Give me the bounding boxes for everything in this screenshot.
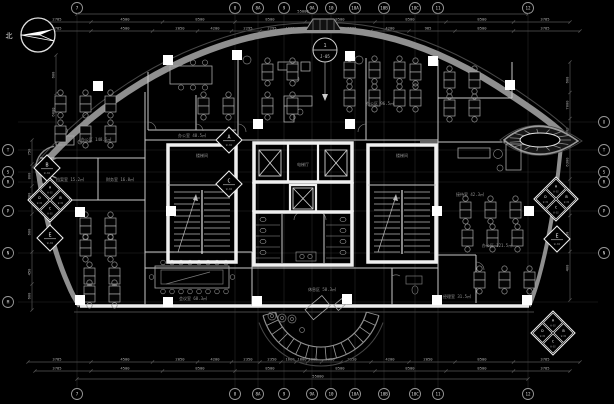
column-marker [93, 81, 103, 91]
dim-value: 450 [26, 268, 31, 276]
room-label: 电梯厅 [297, 161, 309, 167]
ring-spoke [360, 327, 371, 334]
marker-ref: W-02 [553, 191, 559, 194]
dim-value: 750 [26, 148, 31, 156]
dim-value: 8500 [195, 17, 205, 22]
dim-value: 985 [425, 26, 432, 31]
sink-counter [296, 252, 316, 261]
sink [300, 254, 304, 258]
room-label: 经理室 31.5㎡ [443, 293, 471, 299]
chair [83, 90, 88, 95]
chair [161, 260, 166, 265]
desk [223, 98, 234, 106]
stair-direction-arrow [378, 196, 396, 252]
desk [80, 226, 91, 234]
dim-value: 8500 [477, 357, 487, 362]
chair [179, 289, 184, 294]
chair [190, 85, 195, 90]
marker-ref: W-02 [554, 242, 561, 246]
chair [488, 196, 493, 201]
desk [460, 202, 471, 210]
chair [108, 120, 113, 125]
workstation-bank [410, 84, 421, 112]
north-arrow-icon: 北 [6, 18, 56, 52]
elevation-marker-single: EW-02 [37, 225, 63, 251]
column-marker [432, 206, 442, 216]
toilet-fixture [340, 250, 346, 254]
dim-value: 2050 [423, 357, 433, 362]
desk [444, 72, 455, 80]
grid-bubble: M [3, 297, 14, 308]
desk [469, 80, 480, 88]
marker-ref: W-02 [553, 212, 559, 215]
ring-spoke [279, 333, 288, 342]
chair [347, 79, 352, 84]
dim-value: 400 [564, 264, 569, 272]
marker-ref: W-02 [47, 241, 54, 245]
grid-bubble-label: 9A [309, 392, 315, 397]
grid-bubble: N [3, 248, 14, 259]
marker-ref: W-02 [540, 335, 546, 338]
chair [197, 289, 202, 294]
desk [469, 72, 480, 80]
dim-value: 4200 [385, 357, 395, 362]
ring-spoke [366, 312, 379, 315]
chair [413, 107, 418, 112]
chair [108, 143, 113, 148]
meeting-table [170, 66, 212, 84]
chair [170, 289, 175, 294]
desk [485, 210, 496, 218]
chair [477, 266, 482, 271]
chair [372, 79, 377, 84]
grid-bubble: P [3, 206, 14, 217]
room-label: 办公区 96.5㎡ [366, 100, 394, 106]
workstation-bank [198, 92, 234, 120]
desk [223, 106, 234, 114]
cad-floor-plan-viewport: 77888A8A999A9A101010A10A10B10B10C10C1111… [0, 0, 614, 404]
desk [262, 98, 273, 106]
ring-spoke [364, 320, 376, 325]
grid-bubble-label: 11 [435, 392, 441, 397]
desk [84, 268, 95, 276]
dim-value: 3785 [540, 17, 549, 22]
desk [524, 280, 535, 288]
desk [462, 230, 473, 238]
dimension-layer: 5500027854500850085008500850085003785378… [26, 9, 581, 381]
chair [206, 289, 211, 294]
column-marker [345, 51, 355, 61]
restroom-block [254, 212, 352, 265]
dim-value: 3785 [52, 366, 61, 371]
dim-value: 2350 [267, 357, 277, 362]
chair [265, 58, 270, 63]
desk [487, 230, 498, 238]
chair [347, 107, 352, 112]
chair [472, 117, 477, 122]
dim-value: 7000 [564, 100, 569, 110]
desk [474, 272, 485, 280]
marker-letter: C [552, 339, 554, 344]
grid-bubble-label: 12 [525, 6, 531, 11]
ring-spoke [354, 333, 363, 342]
marker-letter: E [555, 234, 558, 240]
chair [413, 58, 418, 63]
chair [413, 84, 418, 89]
desk [105, 218, 116, 226]
room-label: 楼梯间 [196, 152, 208, 158]
grid-bubble: 8A [253, 3, 264, 14]
chair [226, 115, 231, 120]
desk [410, 90, 421, 98]
grid-bubble-label: 10A [351, 392, 359, 397]
chair [513, 196, 518, 201]
ring-spoke [272, 327, 283, 334]
dim-value: 600 [26, 228, 31, 236]
column-marker [342, 294, 352, 304]
marker-ref: W-02 [44, 171, 51, 175]
floor-plan-canvas: 77888A8A999A9A101010A10A10B10B10C10C1111… [0, 0, 614, 404]
chair [83, 257, 88, 262]
chair [190, 60, 195, 65]
desk [80, 126, 91, 134]
grid-bubble-label: 12 [525, 392, 531, 397]
desk [109, 268, 120, 276]
desk [394, 62, 405, 70]
column-marker [524, 206, 534, 216]
dim-value: 2050 [175, 26, 185, 31]
desk [105, 226, 116, 234]
chair [290, 58, 295, 63]
column-marker [232, 50, 242, 60]
dim-value: 8500 [335, 366, 345, 371]
chair [58, 90, 63, 95]
dim-value: 3785 [540, 26, 549, 31]
marker-letter: C [49, 206, 51, 211]
dim-value: 8500 [405, 366, 415, 371]
grid-bubble: 10 [326, 389, 337, 400]
toilet-fixture [260, 250, 266, 254]
elevation-marker-quad: AW-02BW-02CW-02DW-02 [28, 178, 72, 222]
desk [344, 62, 355, 70]
marker-ref: W-02 [226, 143, 233, 147]
grid-bubble-label: 10B [380, 6, 388, 11]
grid-bubble-label: 9A [309, 6, 315, 11]
dim-value: 800 [26, 172, 31, 180]
desk [369, 90, 380, 98]
desk [105, 126, 116, 134]
chair [161, 289, 166, 294]
dim-value: 8500 [335, 17, 345, 22]
desk [109, 286, 120, 294]
marker-ref: W-02 [226, 187, 233, 191]
lounge-balcony-ring [259, 312, 383, 366]
grid-bubble-label: 10 [328, 6, 334, 11]
chair [463, 219, 468, 224]
toilet-fixture [260, 239, 266, 243]
column-marker [75, 207, 85, 217]
grid-bubble: S [599, 167, 610, 178]
grid-bubble: 9 [279, 3, 290, 14]
desk [80, 218, 91, 226]
stair-arrowhead [393, 194, 398, 201]
toilet-fixture [340, 217, 346, 221]
room-label: 休息区 58.3㎡ [308, 286, 336, 292]
wc-small-room [406, 276, 422, 294]
grid-bubble-label: 10C [411, 392, 419, 397]
desk [105, 104, 116, 112]
desk [198, 106, 209, 114]
chair [108, 212, 113, 217]
workstation-bank [474, 266, 535, 294]
grid-bubble: P [599, 206, 610, 217]
chair [447, 89, 452, 94]
chair [202, 60, 207, 65]
dim-value: 4500 [120, 26, 130, 31]
chair [87, 262, 92, 267]
desk [287, 64, 298, 72]
elevator-cars [259, 150, 347, 209]
chair [372, 107, 377, 112]
column-marker [345, 119, 355, 129]
desk [287, 98, 298, 106]
chair [465, 224, 470, 229]
grid-bubble: 10C [410, 389, 421, 400]
chair [488, 219, 493, 224]
chair [226, 92, 231, 97]
desk [105, 248, 116, 256]
chair [290, 92, 295, 97]
dim-value: 55000 [312, 374, 324, 379]
desk [55, 96, 66, 104]
grid-bubble-label: 11 [435, 6, 441, 11]
desk [510, 202, 521, 210]
desk [55, 134, 66, 142]
marker-letter: B [45, 163, 48, 169]
desk [344, 70, 355, 78]
workstation-bank [80, 212, 116, 240]
callout-top-text: 1 [323, 43, 326, 49]
callout-bottom-text: J-05 [320, 54, 330, 59]
marker-ref: W-02 [47, 192, 53, 195]
dim-value: 8500 [477, 17, 487, 22]
column-marker [252, 296, 262, 306]
dim-value: 600 [26, 292, 31, 300]
dim-value: 8500 [477, 366, 487, 371]
chair [397, 56, 402, 61]
desk [369, 70, 380, 78]
desk [80, 104, 91, 112]
dim-value: 3785 [540, 357, 549, 362]
marker-ref: W-02 [550, 325, 556, 328]
dim-value: 8500 [405, 17, 415, 22]
chair [515, 224, 520, 229]
marker-letter: E [48, 233, 51, 239]
outer-wall-offset-top [32, 23, 569, 168]
dim-value: 8500 [195, 366, 205, 371]
grid-bubble: 10 [326, 3, 337, 14]
marker-ref: W-02 [543, 201, 549, 204]
desk [469, 100, 480, 108]
chair [224, 289, 229, 294]
marker-ref: W-02 [564, 201, 570, 204]
desk [84, 294, 95, 302]
grid-bubble-label: 8A [255, 392, 261, 397]
chair [149, 275, 154, 280]
workstation-bank [410, 58, 421, 86]
chair [201, 115, 206, 120]
dim-value: 8500 [265, 17, 275, 22]
chair [83, 143, 88, 148]
desk [469, 108, 480, 116]
dim-value: 8500 [477, 26, 487, 31]
grid-bubble: 11 [433, 3, 444, 14]
chair [413, 81, 418, 86]
desk [262, 72, 273, 80]
grid-bubble-label: 10C [411, 6, 419, 11]
desk [55, 104, 66, 112]
dim-value: 6300 [564, 157, 569, 167]
marker-ref: W-02 [58, 202, 64, 205]
elevation-marker-single: CW-02 [216, 171, 242, 197]
desk [344, 98, 355, 106]
column-marker [163, 297, 173, 307]
stair-arrowhead [193, 194, 198, 201]
chair [265, 92, 270, 97]
grid-bubble: R [599, 177, 610, 188]
chair [477, 289, 482, 294]
chair [490, 224, 495, 229]
dim-value: 3785 [52, 357, 61, 362]
grid-bubble-label: 8A [255, 6, 261, 11]
chair [447, 66, 452, 71]
dim-value: 600 [564, 76, 569, 84]
marker-letter: C [555, 205, 557, 210]
grid-bubble: 12 [523, 3, 534, 14]
chair [527, 289, 532, 294]
column-marker [428, 56, 438, 66]
grid-bubble: T [3, 145, 14, 156]
chair [347, 84, 352, 89]
dim-value: 4500 [120, 357, 130, 362]
workstation-bank [344, 84, 405, 112]
grid-bubble: 10C [410, 3, 421, 14]
marker-ref: W-02 [550, 346, 556, 349]
grid-bubble-label: 10 [328, 392, 334, 397]
desk [369, 62, 380, 70]
chair [397, 84, 402, 89]
ring-spoke [348, 339, 355, 350]
desk [444, 80, 455, 88]
chair [201, 92, 206, 97]
chair [502, 266, 507, 271]
chair [502, 289, 507, 294]
dim-value: 600 [50, 71, 55, 79]
desk [499, 272, 510, 280]
room-label: 办公区 148.6㎡ [81, 136, 111, 142]
desk [410, 72, 421, 80]
desk [105, 96, 116, 104]
chair [527, 266, 532, 271]
stair-direction-arrow [178, 196, 196, 252]
room-label: 会议室 68.3㎡ [179, 295, 207, 301]
toilet-fixture [260, 217, 266, 221]
desk [105, 240, 116, 248]
desk [512, 230, 523, 238]
ring-spoke [341, 343, 346, 355]
desk [510, 210, 521, 218]
chair [108, 113, 113, 118]
desk [394, 90, 405, 98]
chair [188, 289, 193, 294]
room-label: 财务室 16.8㎡ [106, 176, 134, 182]
column-marker [166, 206, 176, 216]
desk [524, 272, 535, 280]
lounge-furniture [268, 287, 346, 332]
desk [80, 240, 91, 248]
grid-bubble: 8A [253, 389, 264, 400]
workstation-bank [460, 196, 521, 224]
dim-value: 2785 [52, 17, 61, 22]
grid-bubble: 10B [379, 3, 390, 14]
workstation-bank [80, 234, 116, 262]
desk [394, 70, 405, 78]
desk [410, 64, 421, 72]
marker-ref: W-02 [37, 202, 43, 205]
dim-value: 4500 [120, 366, 130, 371]
grid-bubble: 10A [350, 3, 361, 14]
grid-bubble: 8 [230, 389, 241, 400]
outer-wall-top-curve [38, 30, 562, 170]
desk [198, 98, 209, 106]
chair [372, 84, 377, 89]
desk [485, 202, 496, 210]
dim-value: 55000 [297, 9, 309, 14]
room-label: 接待室 42.3㎡ [456, 191, 484, 197]
room-label: 办公区 121.5㎡ [482, 242, 512, 248]
chair [397, 107, 402, 112]
grid-bubble-label: 10B [380, 392, 388, 397]
chair [58, 113, 63, 118]
grid-bubble: U [599, 117, 610, 128]
desk [55, 126, 66, 134]
chair [372, 56, 377, 61]
chair [83, 113, 88, 118]
grid-bubble: 9A [307, 389, 318, 400]
grid-bubble: N [599, 248, 610, 259]
dim-value: 2350 [243, 357, 253, 362]
conference-table [155, 266, 229, 288]
desk [262, 106, 273, 114]
desk [84, 286, 95, 294]
grid-bubble: 9 [279, 389, 290, 400]
marker-ref: W-02 [47, 213, 53, 216]
chair [215, 289, 220, 294]
chair [202, 85, 207, 90]
room-label: 楼梯间 [396, 152, 408, 158]
desk [262, 64, 273, 72]
ring-spoke [296, 343, 301, 355]
chair [290, 81, 295, 86]
chair [265, 115, 270, 120]
grid-bubble: T [599, 145, 610, 156]
elevation-marker-quad: AW-02BW-02CW-02DW-02 [531, 311, 575, 355]
marker-ref: W-02 [561, 335, 567, 338]
chair [465, 247, 470, 252]
grid-bubble: 8 [230, 3, 241, 14]
room-label: 办公室 48.5㎡ [178, 132, 206, 138]
marker-letter: A [227, 135, 230, 141]
